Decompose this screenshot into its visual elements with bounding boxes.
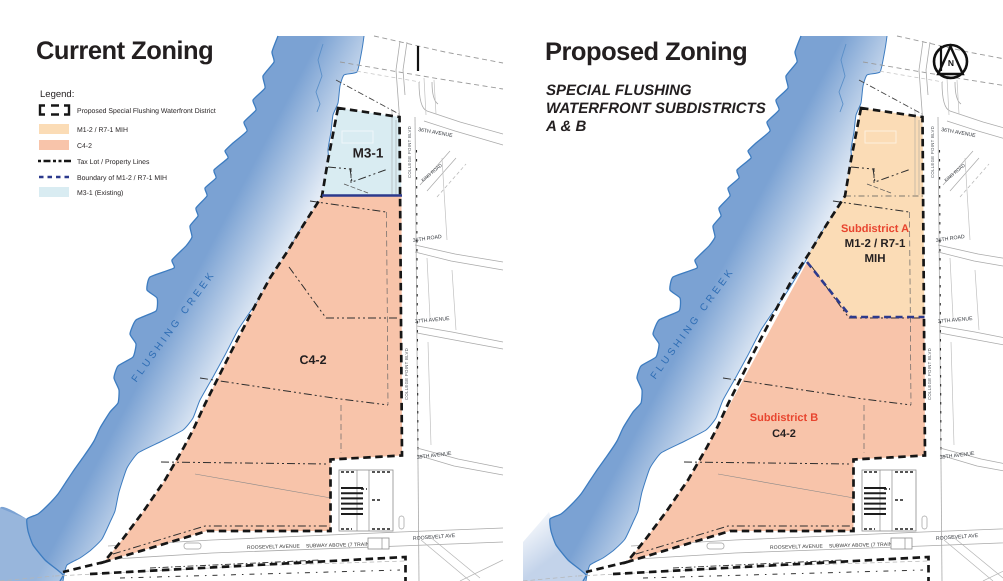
svg-text:Proposed Zoning: Proposed Zoning: [545, 38, 747, 66]
svg-text:Boundary of M1-2 / R7-1 MIH: Boundary of M1-2 / R7-1 MIH: [77, 175, 167, 182]
svg-text:Legend:: Legend:: [40, 89, 74, 100]
svg-text:C4-2: C4-2: [77, 143, 92, 150]
svg-text:39TH AVENUE: 39TH AVENUE: [940, 451, 976, 461]
svg-text:36TH ROAD: 36TH ROAD: [935, 234, 965, 244]
svg-text:MIH: MIH: [864, 253, 885, 265]
svg-text:Subdistrict A: Subdistrict A: [841, 223, 909, 235]
svg-text:Current Zoning: Current Zoning: [36, 37, 213, 65]
svg-text:M1-2 / R7-1 MIH: M1-2 / R7-1 MIH: [77, 127, 128, 134]
svg-text:36TH ROAD: 36TH ROAD: [412, 234, 442, 244]
svg-text:Tax Lot / Property Lines: Tax Lot / Property Lines: [77, 159, 150, 166]
svg-text:N: N: [948, 58, 954, 68]
svg-text:WATERFRONT SUBDISTRICTS: WATERFRONT SUBDISTRICTS: [546, 100, 766, 117]
svg-text:A & B: A & B: [545, 118, 586, 135]
svg-text:39TH AVENUE: 39TH AVENUE: [417, 451, 453, 461]
svg-text:KING ROAD: KING ROAD: [420, 162, 443, 183]
svg-text:COLLEGE POINT BLVD: COLLEGE POINT BLVD: [407, 126, 412, 178]
svg-text:Proposed Special Flushing Wate: Proposed Special Flushing Waterfront Dis…: [77, 108, 216, 115]
svg-text:37TH AVENUE: 37TH AVENUE: [938, 316, 974, 325]
svg-text:C4-2: C4-2: [299, 353, 326, 367]
svg-text:37TH AVENUE: 37TH AVENUE: [415, 316, 451, 325]
svg-text:COLLEGE POINT BLVD: COLLEGE POINT BLVD: [404, 348, 409, 400]
svg-text:Subdistrict B: Subdistrict B: [750, 412, 819, 424]
svg-text:M3-1: M3-1: [353, 146, 384, 161]
svg-text:SPECIAL FLUSHING: SPECIAL FLUSHING: [546, 82, 692, 99]
svg-text:COLLEGE POINT BLVD: COLLEGE POINT BLVD: [927, 348, 932, 400]
svg-text:COLLEGE POINT BLVD: COLLEGE POINT BLVD: [930, 126, 935, 178]
svg-text:M1-2 / R7-1: M1-2 / R7-1: [845, 238, 906, 250]
svg-text:C4-2: C4-2: [772, 428, 796, 440]
svg-text:KING ROAD: KING ROAD: [943, 162, 966, 183]
svg-text:M3-1 (Existing): M3-1 (Existing): [77, 190, 123, 197]
